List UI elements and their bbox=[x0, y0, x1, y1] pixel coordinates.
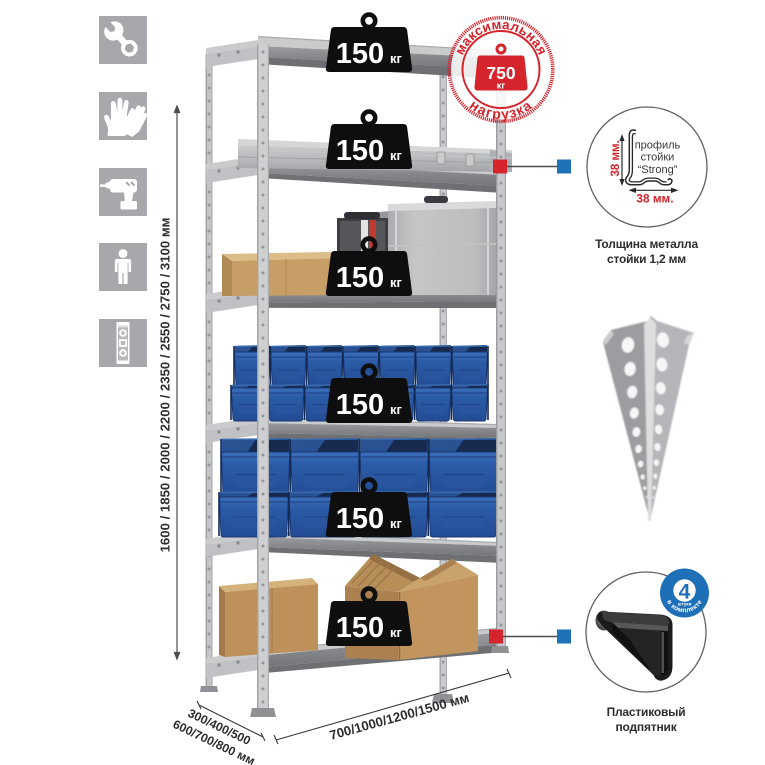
svg-text:38 мм.: 38 мм. bbox=[636, 192, 673, 206]
svg-text:150: 150 bbox=[336, 262, 384, 294]
svg-text:4: 4 bbox=[679, 581, 691, 604]
svg-text:1600 / 1850 / 2000 / 2200 / 23: 1600 / 1850 / 2000 / 2200 / 2350 / 2550 … bbox=[158, 218, 173, 553]
svg-text:кг: кг bbox=[390, 402, 403, 417]
svg-text:кг: кг bbox=[390, 516, 403, 531]
svg-text:150: 150 bbox=[336, 503, 384, 535]
svg-text:150: 150 bbox=[336, 389, 384, 421]
svg-text:Пластиковый: Пластиковый bbox=[607, 705, 686, 719]
svg-text:150: 150 bbox=[336, 612, 384, 644]
svg-text:150: 150 bbox=[336, 135, 384, 167]
svg-text:профиль: профиль bbox=[635, 140, 681, 152]
svg-text:Толщина металла: Толщина металла bbox=[595, 237, 698, 251]
svg-text:штуки: штуки bbox=[678, 602, 692, 607]
svg-text:кг: кг bbox=[390, 275, 403, 290]
svg-text:150: 150 bbox=[336, 38, 384, 70]
svg-text:“Strong”: “Strong” bbox=[638, 164, 678, 176]
svg-text:стойки 1,2 мм: стойки 1,2 мм bbox=[607, 252, 686, 266]
svg-text:кг: кг bbox=[390, 51, 403, 66]
svg-text:кг: кг bbox=[390, 625, 403, 640]
svg-text:кг: кг bbox=[497, 81, 506, 92]
svg-text:стойки: стойки bbox=[641, 152, 675, 164]
svg-text:подпятник: подпятник bbox=[616, 720, 678, 734]
svg-text:38 мм.: 38 мм. bbox=[610, 140, 622, 176]
svg-text:кг: кг bbox=[390, 148, 403, 163]
svg-text:700/1000/1200/1500 мм: 700/1000/1200/1500 мм bbox=[328, 690, 471, 743]
